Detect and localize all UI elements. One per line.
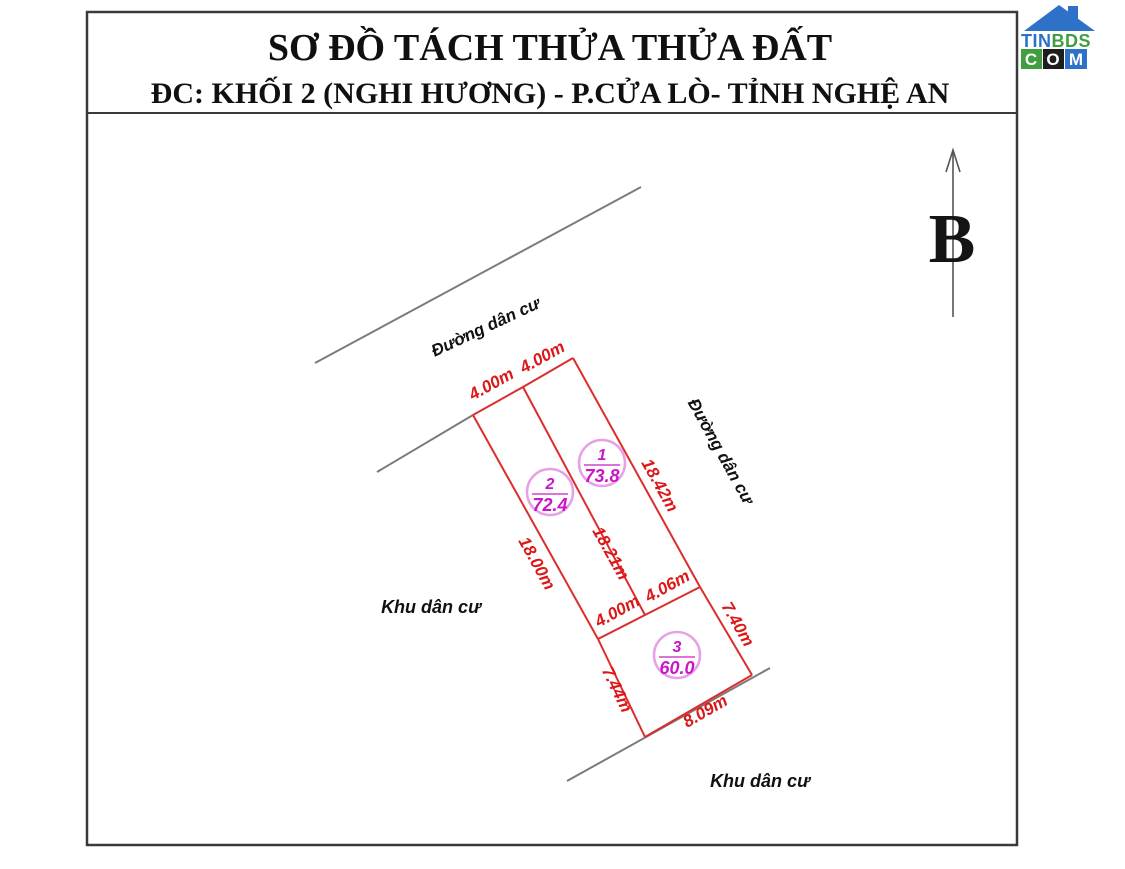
dim-plot3-right: 7.40m bbox=[717, 599, 758, 650]
diagram-svg: SƠ ĐỒ TÁCH THỬA THỬA ĐẤT ĐC: KHỐI 2 (NGH… bbox=[0, 0, 1125, 869]
logo-letter-m: M bbox=[1069, 50, 1083, 69]
dim-plot3-left: 7.44m bbox=[598, 664, 636, 716]
logo-wordmark: TINBDS bbox=[1021, 31, 1091, 51]
plot-2-badge: 2 72.4 bbox=[527, 469, 573, 515]
dim-plot2-top: 4.00m bbox=[465, 364, 517, 404]
page-title: SƠ ĐỒ TÁCH THỬA THỬA ĐẤT bbox=[268, 25, 832, 69]
logo-roof-icon bbox=[1024, 5, 1095, 31]
logo-letter-o: O bbox=[1046, 50, 1059, 69]
dim-plot2-left: 18.00m bbox=[515, 534, 560, 594]
tinbds-logo: TINBDS C O M bbox=[1021, 5, 1095, 69]
page-subtitle: ĐC: KHỐI 2 (NGHI HƯƠNG) - P.CỬA LÒ- TỈNH… bbox=[151, 76, 950, 110]
plot2-left-edge bbox=[473, 415, 598, 639]
plot-3-area: 60.0 bbox=[659, 658, 694, 678]
dimension-labels: 4.00m 4.00m 18.42m 18.21m 18.00m 4.00m 4… bbox=[465, 337, 758, 731]
dim-divider: 18.21m bbox=[589, 524, 634, 584]
logo-bds: BDS bbox=[1052, 31, 1092, 51]
dim-plot2-bottom: 4.00m bbox=[591, 591, 643, 631]
plot-3-number: 3 bbox=[673, 639, 682, 656]
plot-1-badge: 1 73.8 bbox=[579, 440, 625, 486]
north-label: B bbox=[929, 201, 976, 278]
north-compass: B bbox=[929, 150, 976, 317]
outer-frame bbox=[87, 12, 1017, 845]
logo-tin: TIN bbox=[1021, 31, 1052, 51]
road-label-top: Đường dân cư bbox=[428, 293, 545, 361]
plot-1-area: 73.8 bbox=[584, 466, 619, 486]
logo-letter-c: C bbox=[1025, 50, 1037, 69]
plot-1-number: 1 bbox=[598, 447, 607, 464]
plot-2-area: 72.4 bbox=[532, 495, 567, 515]
dim-plot1-bottom: 4.06m bbox=[641, 566, 693, 606]
road-line-upper-left bbox=[377, 415, 473, 472]
land-subdivision-diagram: SƠ ĐỒ TÁCH THỬA THỬA ĐẤT ĐC: KHỐI 2 (NGH… bbox=[0, 0, 1125, 869]
area-label-left: Khu dân cư bbox=[381, 597, 483, 617]
plot-3-badge: 3 60.0 bbox=[654, 632, 700, 678]
dim-plot3-bottom: 8.09m bbox=[680, 691, 731, 732]
road-label-right: Đường dân cư bbox=[684, 395, 759, 509]
plot-2-number: 2 bbox=[545, 476, 555, 493]
area-label-bottom: Khu dân cư bbox=[710, 771, 812, 791]
dim-plot1-top: 4.00m bbox=[516, 337, 568, 377]
